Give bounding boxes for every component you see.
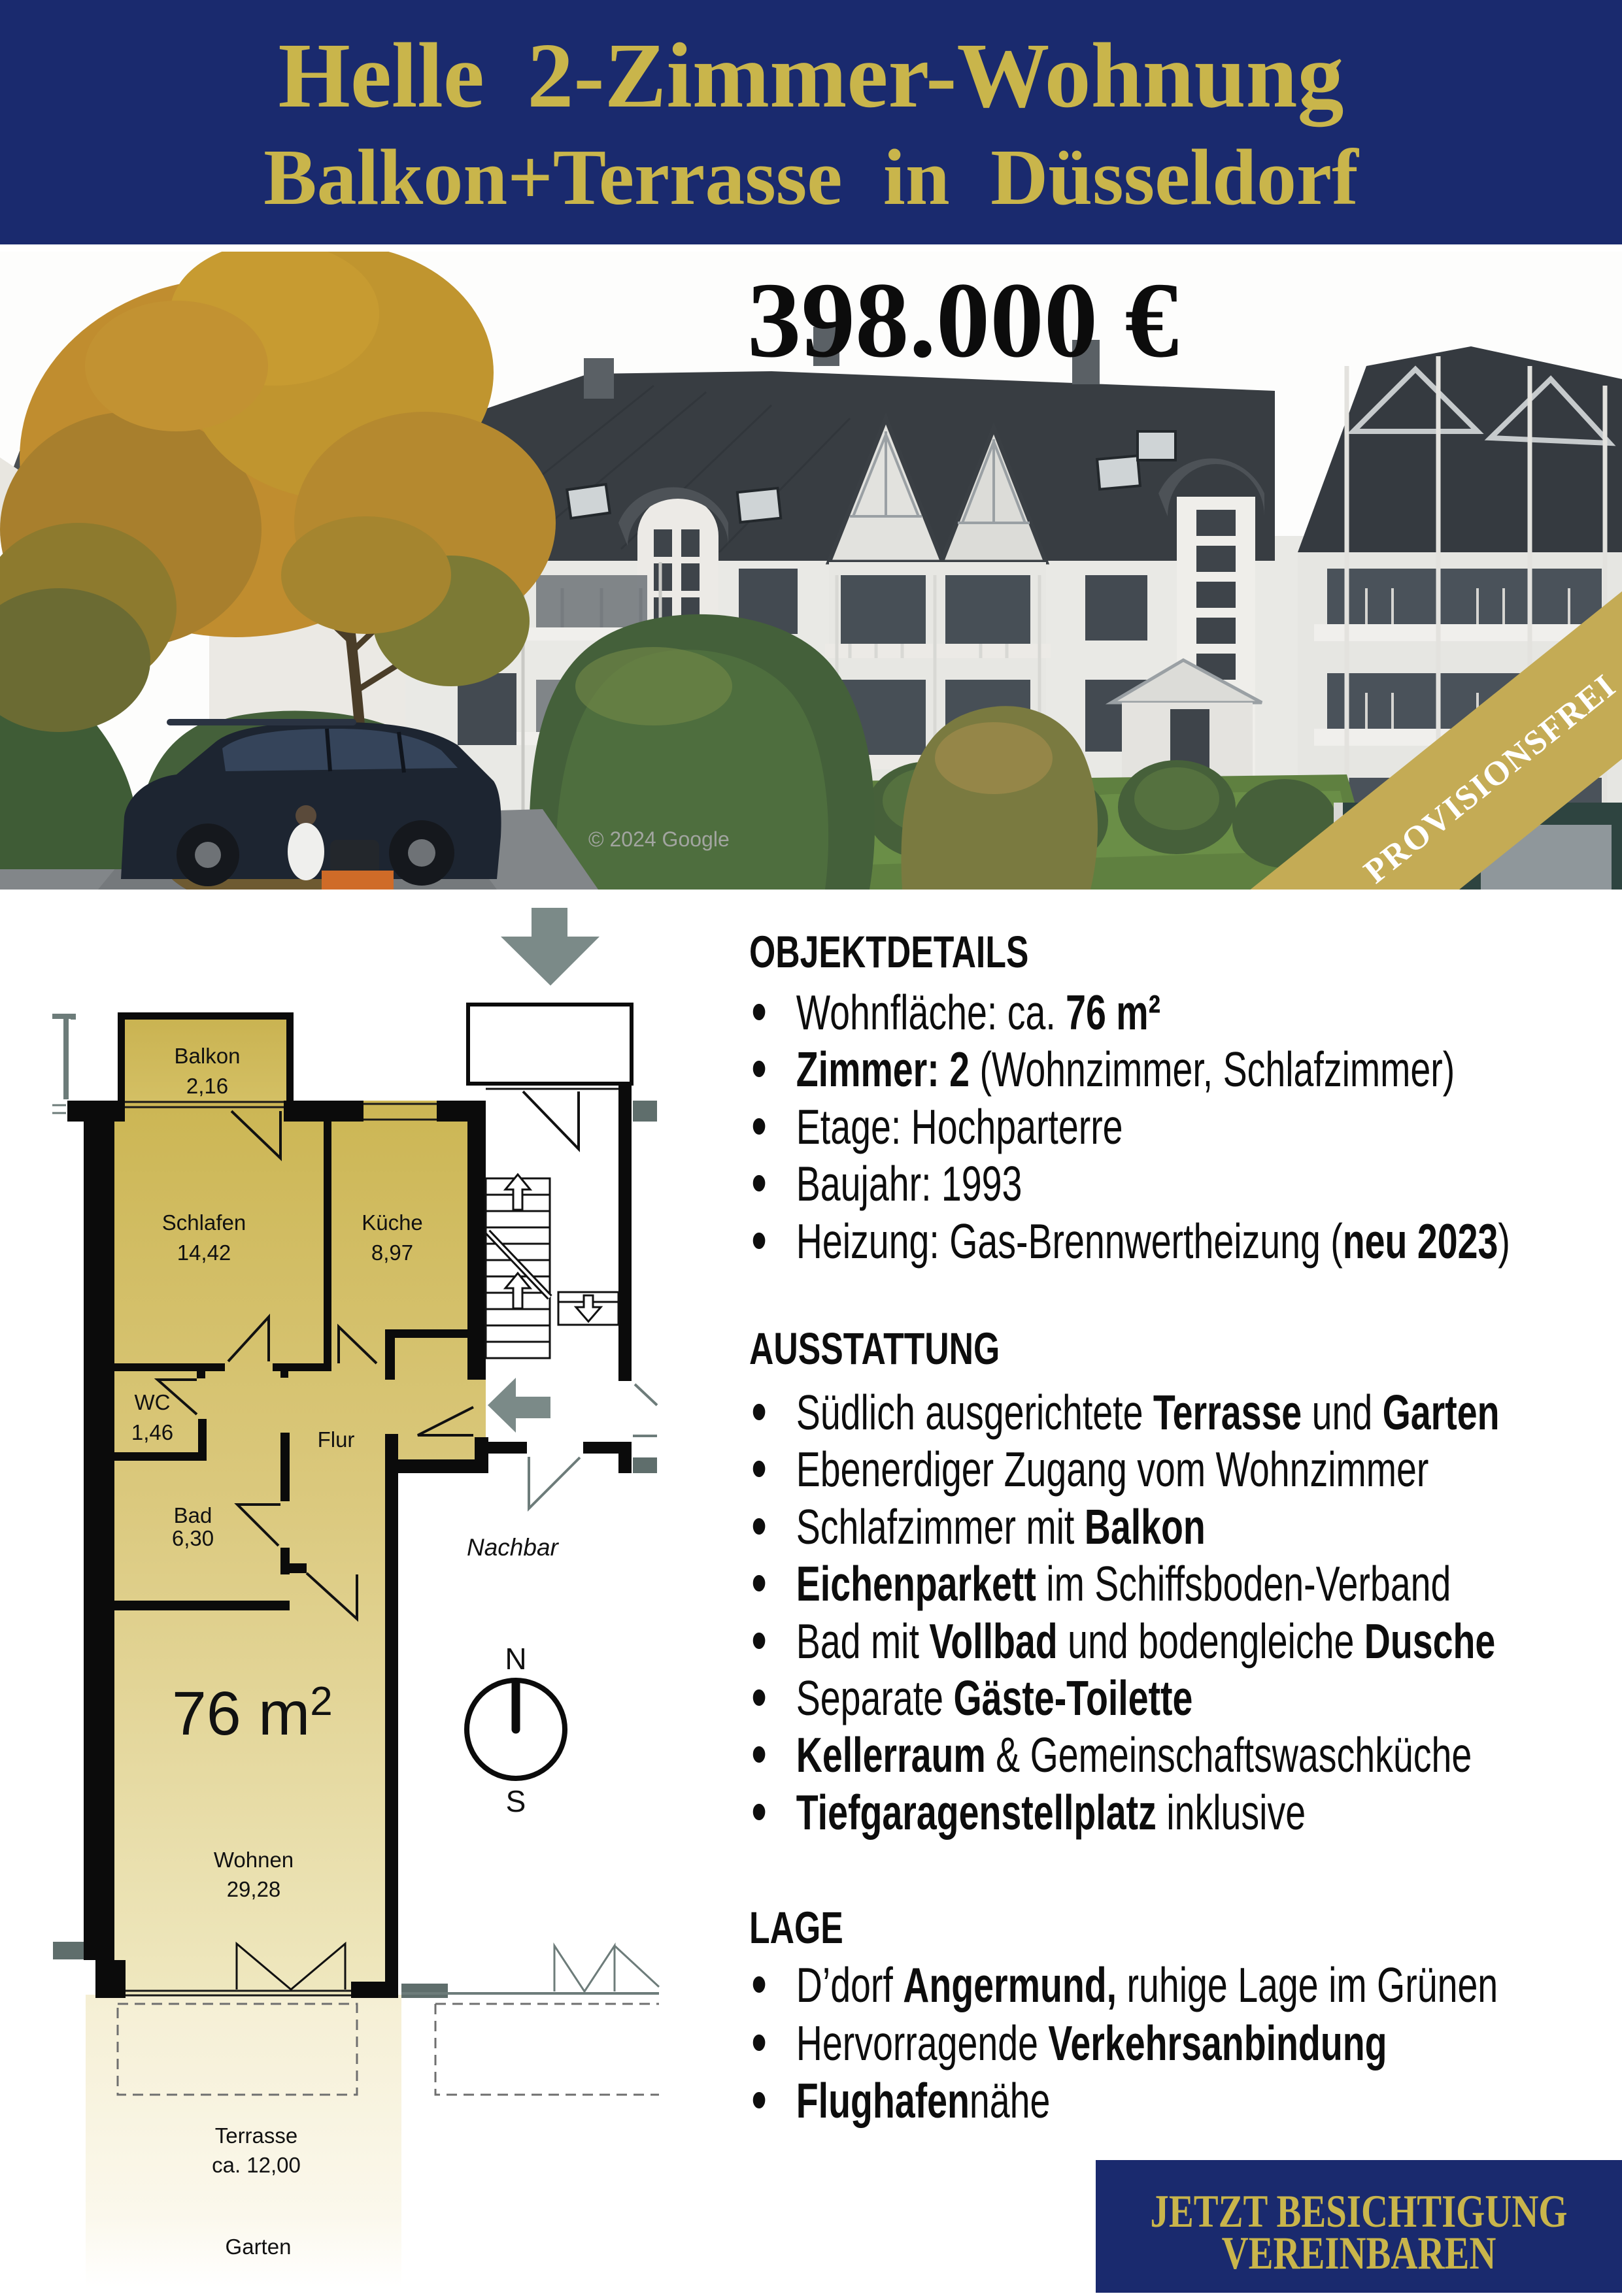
svg-text:398.000 €: 398.000 € [747, 260, 1179, 380]
svg-text:Schlafen: Schlafen [162, 1210, 246, 1235]
svg-text:8,97: 8,97 [371, 1240, 413, 1265]
svg-text:S: S [506, 1784, 526, 1818]
svg-text:Bad: Bad [174, 1503, 212, 1527]
svg-text:Küche: Küche [362, 1210, 423, 1235]
svg-text:© 2024 Google: © 2024 Google [588, 827, 730, 851]
svg-text:Balkon: Balkon [175, 1044, 241, 1068]
svg-text:Nachbar: Nachbar [467, 1534, 560, 1561]
svg-text:Wohnen: Wohnen [214, 1848, 294, 1872]
svg-text:2,16: 2,16 [186, 1074, 228, 1098]
svg-text:76 m2: 76 m2 [172, 1679, 333, 1748]
svg-text:Flur: Flur [318, 1427, 355, 1452]
svg-text:N: N [505, 1642, 526, 1676]
svg-text:1,46: 1,46 [131, 1420, 173, 1444]
svg-text:29,28: 29,28 [227, 1877, 281, 1901]
svg-text:Garten: Garten [226, 2235, 292, 2259]
svg-text:Terrasse: Terrasse [215, 2123, 298, 2148]
svg-text:ca. 12,00: ca. 12,00 [212, 2153, 301, 2177]
svg-text:14,42: 14,42 [177, 1240, 231, 1265]
svg-text:6,30: 6,30 [172, 1526, 214, 1550]
svg-text:WC: WC [135, 1390, 171, 1414]
